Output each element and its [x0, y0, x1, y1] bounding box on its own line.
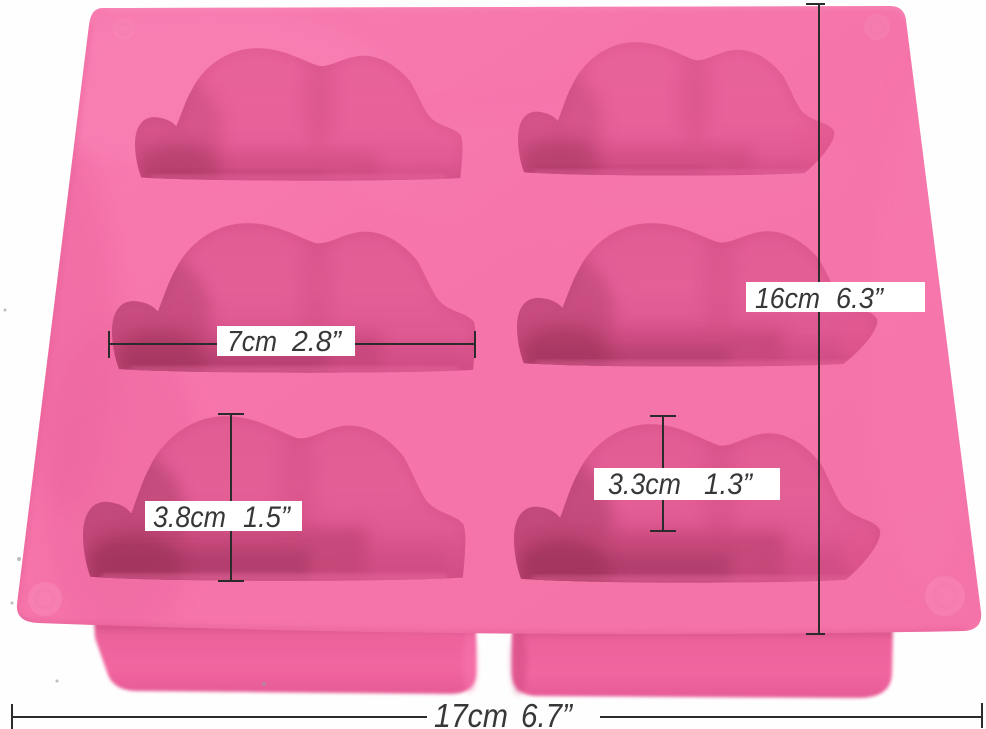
svg-text:7cm: 7cm: [227, 326, 277, 358]
svg-text:6.7”: 6.7”: [521, 697, 574, 729]
svg-text:17cm: 17cm: [434, 697, 508, 729]
svg-text:3.3cm: 3.3cm: [608, 468, 681, 501]
svg-text:2.8”: 2.8”: [291, 326, 342, 358]
svg-text:16cm: 16cm: [755, 283, 820, 315]
svg-text:1.3”: 1.3”: [704, 468, 754, 501]
svg-text:6.3”: 6.3”: [836, 283, 884, 315]
svg-text:1.5”: 1.5”: [243, 501, 292, 534]
svg-text:3.8cm: 3.8cm: [153, 501, 226, 534]
